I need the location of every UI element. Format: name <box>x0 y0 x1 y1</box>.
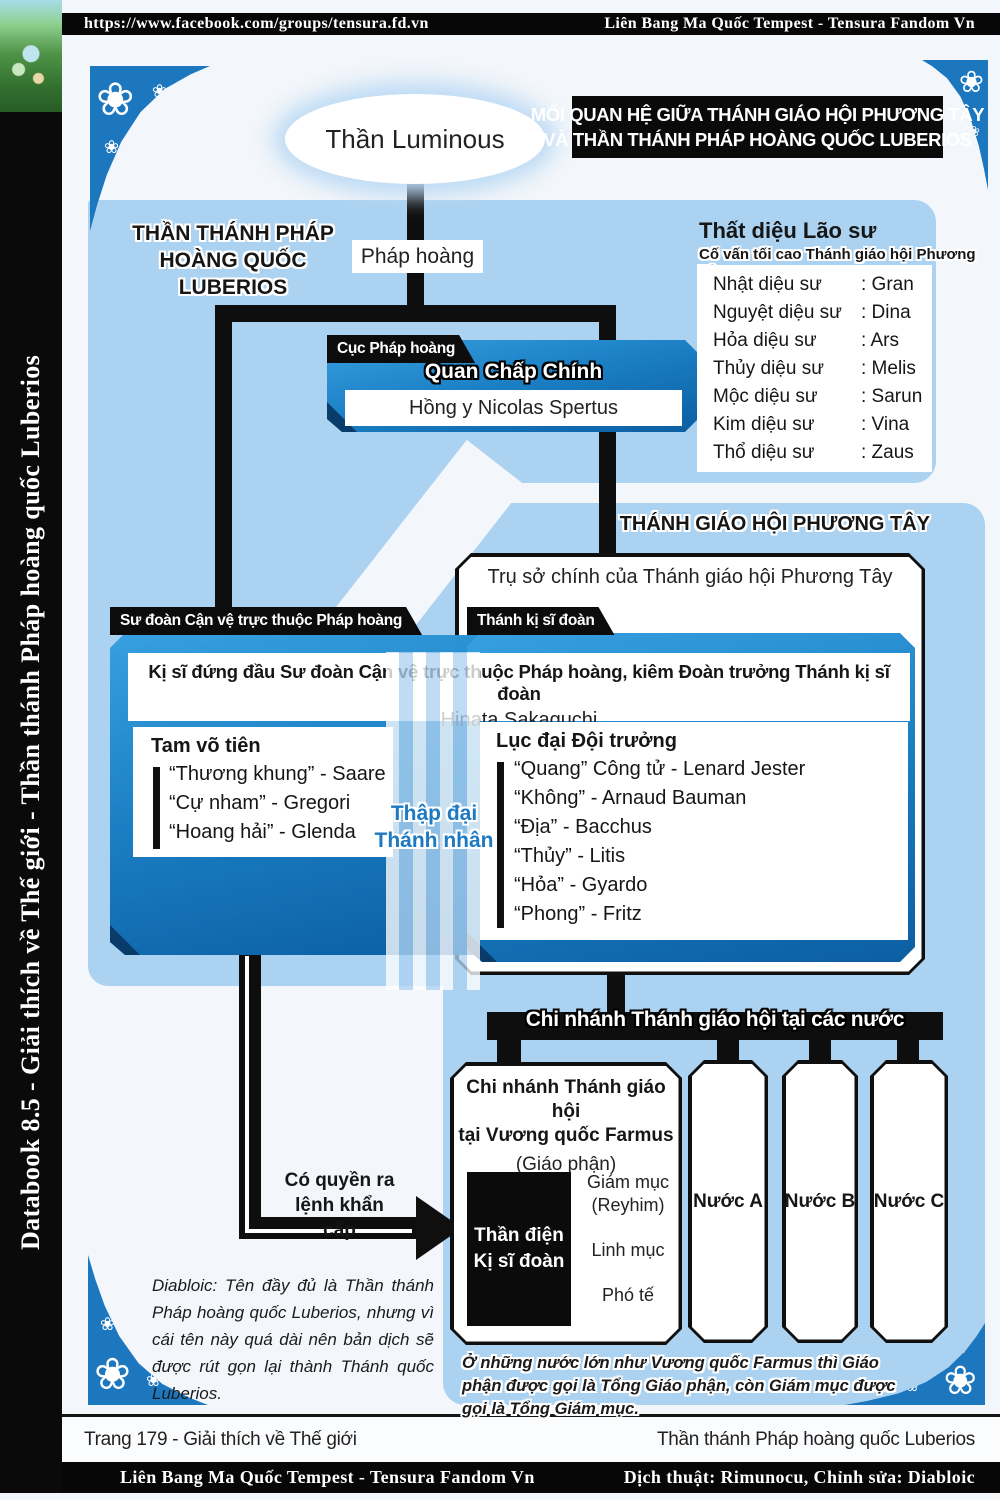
list-item: “Thương khung” - Saare <box>169 760 393 789</box>
advisor-role: Kim diệu sư <box>713 411 861 439</box>
hinata-role: Kị sĩ đứng đầu Sư đoàn Cận vệ trực thuộc… <box>128 661 910 705</box>
luberios-heading: THẦN THÁNH PHÁP HOÀNG QUỐC LUBERIOS <box>120 220 346 301</box>
temple-knights-line2: Kị sĩ đoàn <box>474 1249 565 1275</box>
deity-name: Thần Luminous <box>325 124 504 155</box>
footer-bar: Liên Bang Ma Quốc Tempest - Tensura Fand… <box>62 1462 1000 1493</box>
farmus-title-line1: Chi nhánh Thánh giáo hội <box>450 1076 682 1124</box>
footer-section-title: Thần thánh Pháp hoàng quốc Luberios <box>657 1429 975 1451</box>
advisor-role: Nguyệt diệu sư <box>713 299 861 327</box>
advisor-role: Thổ diệu sư <box>713 439 861 467</box>
arrow-white-inset-v <box>245 956 249 1233</box>
advisors-title: Thất diệu Lão sư <box>699 218 876 244</box>
translator-note: Diabloic: Tên đầy đủ là Thần thánh Pháp … <box>152 1272 434 1407</box>
executive-person-box: Hồng y Nicolas Spertus <box>345 390 682 426</box>
three-martial-title: Tam võ tiên <box>151 735 393 758</box>
flower-icon: ❀ <box>96 76 135 122</box>
country-c-label: Nước C <box>874 1191 945 1213</box>
advisor-name: : Melis <box>861 355 916 383</box>
list-item: “Hoang hải” - Glenda <box>169 818 393 847</box>
list-item: “Hỏa” - Gyardo <box>514 871 908 900</box>
advisor-name: : Gran <box>861 271 914 299</box>
ten-saints-line2: Thánh nhân <box>374 827 494 854</box>
emergency-line1: Có quyền ra <box>277 1168 402 1193</box>
flower-icon: ❀ <box>104 138 119 156</box>
deity-oval: Thần Luminous <box>285 94 545 184</box>
community-name: Liên Bang Ma Quốc Tempest - Tensura Fand… <box>604 15 975 33</box>
luberios-heading-line1: THẦN THÁNH PHÁP <box>120 220 346 247</box>
flower-icon: ❀ <box>152 82 167 100</box>
advisor-name: : Dina <box>861 299 911 327</box>
guard-division-tag: Sư đoàn Cận vệ trực thuộc Pháp hoàng <box>110 607 422 635</box>
executive-title: Quan Chấp Chính <box>327 360 700 384</box>
pope-label: Pháp hoàng <box>352 240 483 273</box>
footer-community: Liên Bang Ma Quốc Tempest - Tensura Fand… <box>120 1467 535 1488</box>
arrow-vertical <box>239 950 261 1239</box>
ten-saints-label: Thập đại Thánh nhân <box>374 800 494 854</box>
title-line2: VÀ THẦN THÁNH PHÁP HOÀNG QUỐC LUBERIOS <box>543 127 971 152</box>
list-item: “Cự nham” - Gregori <box>169 789 393 818</box>
executive-tag-text: Cục Pháp hoàng <box>337 340 455 357</box>
country-c-box: Nước C <box>870 1060 948 1343</box>
six-captains-box: Lục đại Đội trưởng “Quang” Công tử - Len… <box>480 722 908 940</box>
ten-saints-line1: Thập đại <box>374 800 494 827</box>
pope-label-text: Pháp hoàng <box>361 245 474 269</box>
advisor-row: Thổ diệu sư: Zaus <box>713 439 932 467</box>
advisor-name: : Ars <box>861 327 899 355</box>
relationship-title: MỐI QUAN HỆ GIỮA THÁNH GIÁO HỘI PHƯƠNG T… <box>572 96 943 158</box>
advisor-row: Nhật diệu sư: Gran <box>713 271 932 299</box>
list-item: “Không” - Arnaud Bauman <box>514 784 908 813</box>
bishop-name: (Reyhim) <box>580 1195 676 1216</box>
executive-tag: Cục Pháp hoàng <box>327 335 475 363</box>
hinata-band: Kị sĩ đứng đầu Sư đoàn Cận vệ trực thuộc… <box>128 653 910 721</box>
side-spine: Databook 8.5 - Giải thích về Thế giới - … <box>0 112 62 1493</box>
branches-bar-label: Chi nhánh Thánh giáo hội tại các nước <box>487 1008 943 1032</box>
footer-credits: Dịch thuật: Rimunocu, Chỉnh sửa: Diabloi… <box>624 1467 975 1488</box>
guard-division-tag-text: Sư đoàn Cận vệ trực thuộc Pháp hoàng <box>120 612 402 629</box>
temple-knights-line1: Thần điện <box>474 1223 564 1249</box>
advisor-role: Nhật diệu sư <box>713 271 861 299</box>
church-heading: THÁNH GIÁO HỘI PHƯƠNG TÂY <box>600 513 930 536</box>
farmus-branch-content: Chi nhánh Thánh giáo hội tại Vương quốc … <box>450 1062 682 1345</box>
luberios-heading-line2: HOÀNG QUỐC LUBERIOS <box>120 247 346 301</box>
advisor-row: Hỏa diệu sư: Ars <box>713 327 932 355</box>
advisor-name: : Vina <box>861 411 909 439</box>
flower-icon: ❀ <box>100 1315 115 1333</box>
list-item: “Địa” - Bacchus <box>514 813 908 842</box>
advisor-name: : Zaus <box>861 439 914 467</box>
flower-icon: ❀ <box>959 68 984 98</box>
farmus-ranks: Giám mục (Reyhim) Linh mục Phó tế <box>580 1172 676 1306</box>
advisor-role: Mộc diệu sư <box>713 383 861 411</box>
emergency-line2: lệnh khẩn cấp <box>277 1193 402 1243</box>
databook-page: https://www.facebook.com/groups/tensura.… <box>0 0 1000 1500</box>
title-line1: MỐI QUAN HỆ GIỮA THÁNH GIÁO HỘI PHƯƠNG T… <box>531 102 984 127</box>
list-item: “Quang” Công tử - Lenard Jester <box>514 755 908 784</box>
farmus-title-line2: tại Vương quốc Farmus <box>450 1124 682 1148</box>
country-b-label: Nước B <box>785 1191 856 1213</box>
spine-title: Databook 8.5 - Giải thích về Thế giới - … <box>0 112 62 1493</box>
hq-title: Trụ sở chính của Thánh giáo hội Phương T… <box>465 566 915 589</box>
advisor-row: Thủy diệu sư: Melis <box>713 355 932 383</box>
holy-knights-tag-text: Thánh kị sĩ đoàn <box>477 612 595 629</box>
advisor-role: Hỏa diệu sư <box>713 327 861 355</box>
connector-left-drop <box>215 305 232 640</box>
corner-photo <box>0 0 62 112</box>
deacon-label: Phó tế <box>580 1285 676 1306</box>
country-a-label: Nước A <box>693 1191 763 1213</box>
advisor-row: Nguyệt diệu sư: Dina <box>713 299 932 327</box>
executive-person: Hồng y Nicolas Spertus <box>409 397 618 420</box>
list-item: “Thủy” - Litis <box>514 842 908 871</box>
footer-page-number: Trang 179 - Giải thích về Thế giới <box>84 1429 357 1451</box>
flower-icon: ❀ <box>94 1353 131 1397</box>
advisor-name: : Sarun <box>861 383 922 411</box>
holy-knights-tag: Thánh kị sĩ đoàn <box>467 607 615 635</box>
six-captains-title: Lục đại Đội trưởng <box>496 730 908 753</box>
bishop-label: Giám mục <box>580 1172 676 1193</box>
advisors-list: Nhật diệu sư: Gran Nguyệt diệu sư: Dina … <box>697 265 932 472</box>
list-rule <box>497 762 504 928</box>
country-b-box: Nước B <box>782 1060 858 1343</box>
connector-hbar <box>215 305 616 322</box>
priest-label: Linh mục <box>580 1240 676 1261</box>
list-item: “Phong” - Fritz <box>514 900 908 929</box>
advisor-row: Mộc diệu sư: Sarun <box>713 383 932 411</box>
advisor-row: Kim diệu sư: Vina <box>713 411 932 439</box>
temple-knights-box: Thần điện Kị sĩ đoàn <box>467 1172 571 1326</box>
footer-strip: Trang 179 - Giải thích về Thế giới Thần … <box>62 1417 1000 1462</box>
emergency-label: Có quyền ra lệnh khẩn cấp <box>277 1168 402 1243</box>
facebook-url[interactable]: https://www.facebook.com/groups/tensura.… <box>84 15 429 33</box>
branch-drop-farmus <box>497 1040 521 1064</box>
list-rule <box>153 767 160 849</box>
advisor-role: Thủy diệu sư <box>713 355 861 383</box>
top-bar: https://www.facebook.com/groups/tensura.… <box>62 13 1000 35</box>
bottom-note: Ở những nước lớn như Vương quốc Farmus t… <box>462 1352 914 1421</box>
three-martial-box: Tam võ tiên “Thương khung” - Saare “Cự n… <box>133 727 393 857</box>
country-a-box: Nước A <box>688 1060 768 1343</box>
